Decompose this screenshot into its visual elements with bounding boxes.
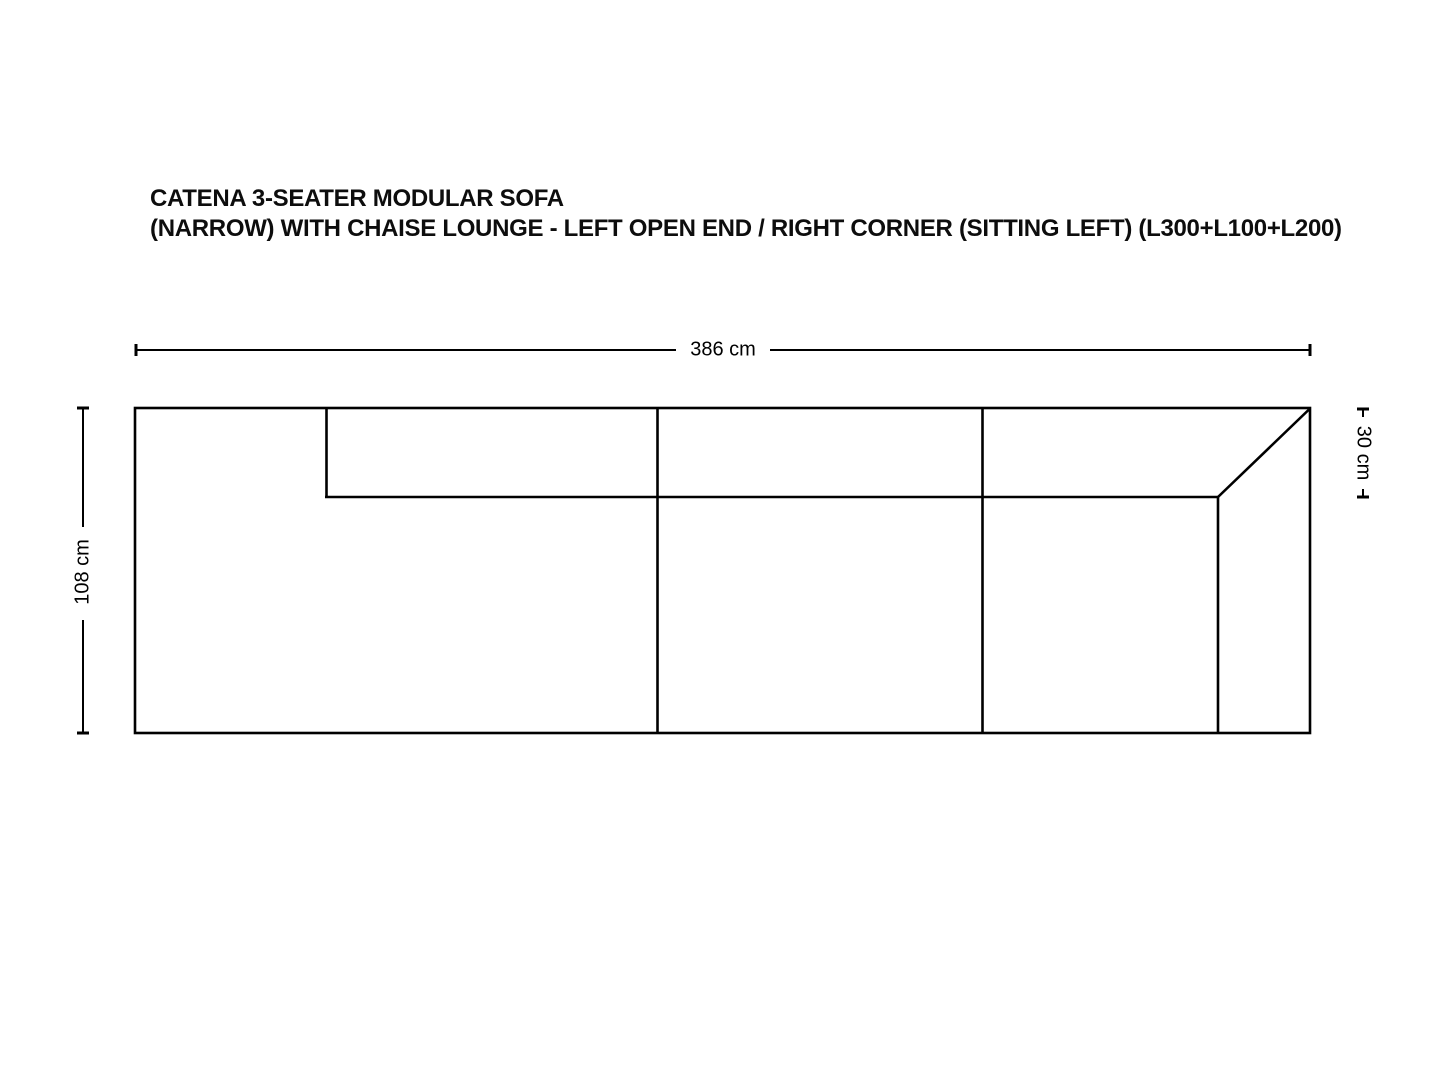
sofa-outer-outline [135,408,1310,733]
sofa-outline-drawing [0,0,1445,1087]
backrest-depth-dimension-label: 30 cm [1352,420,1375,486]
width-dimension-label: 386 cm [684,339,762,362]
corner-diagonal-line [1218,410,1309,498]
sofa-top-view-outline [135,408,1310,733]
depth-dimension-label: 108 cm [72,533,95,611]
sofa-dimension-diagram: CATENA 3-SEATER MODULAR SOFA (NARROW) WI… [0,0,1445,1087]
